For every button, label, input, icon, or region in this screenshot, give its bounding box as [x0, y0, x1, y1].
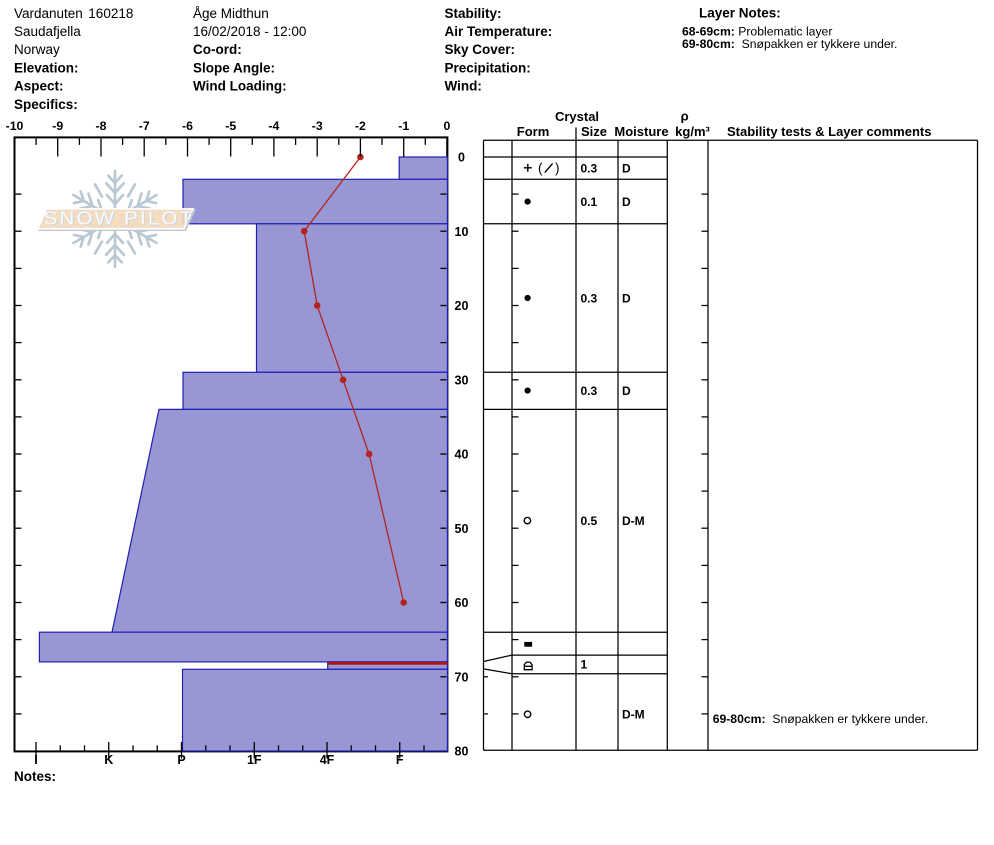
svg-text:80: 80 — [455, 745, 469, 759]
svg-text:4F: 4F — [320, 753, 335, 767]
svg-text:Slope Angle:: Slope Angle: — [193, 60, 275, 75]
svg-text:Norway: Norway — [14, 42, 60, 57]
svg-text:1F: 1F — [247, 753, 262, 767]
svg-text:-5: -5 — [225, 119, 236, 133]
svg-text:Form: Form — [517, 124, 550, 139]
svg-text:ρ: ρ — [681, 109, 689, 124]
svg-text:0.1: 0.1 — [581, 195, 598, 209]
svg-text:Elevation:: Elevation: — [14, 60, 79, 75]
svg-text:0.3: 0.3 — [581, 291, 598, 305]
svg-text:0.3: 0.3 — [581, 384, 598, 398]
svg-text:0.3: 0.3 — [581, 162, 598, 176]
svg-text:50: 50 — [455, 522, 469, 536]
svg-text:30: 30 — [455, 373, 469, 387]
svg-text:Notes:: Notes: — [14, 769, 56, 784]
svg-text:D: D — [622, 162, 631, 176]
svg-text:D-M: D-M — [622, 514, 645, 528]
svg-text:-1: -1 — [398, 119, 409, 133]
svg-text:Moisture: Moisture — [614, 124, 668, 139]
svg-text:Sky Cover:: Sky Cover: — [445, 42, 516, 57]
svg-text:20: 20 — [455, 299, 469, 313]
svg-text:-9: -9 — [52, 119, 63, 133]
svg-text:Layer Notes:: Layer Notes: — [699, 6, 781, 21]
svg-text:kg/m³: kg/m³ — [675, 124, 710, 139]
svg-text:I: I — [34, 753, 37, 767]
svg-text:Co-ord:: Co-ord: — [193, 42, 242, 57]
svg-text:D: D — [622, 291, 631, 305]
svg-text:-8: -8 — [96, 119, 107, 133]
svg-text:P: P — [177, 753, 185, 767]
svg-text:-2: -2 — [355, 119, 366, 133]
svg-text:Vardanuten: Vardanuten — [14, 6, 83, 21]
svg-text:Stability tests & Layer commen: Stability tests & Layer comments — [727, 124, 931, 139]
svg-text:0: 0 — [458, 151, 465, 165]
svg-text:1: 1 — [581, 658, 588, 672]
svg-text:Size: Size — [581, 124, 607, 139]
svg-text:70: 70 — [455, 670, 469, 684]
svg-text:-7: -7 — [139, 119, 150, 133]
svg-text:SNOW PILOT: SNOW PILOT — [44, 208, 195, 229]
svg-text:Åge Midthun: Åge Midthun — [193, 6, 269, 21]
svg-text:D: D — [622, 195, 631, 209]
svg-text:-6: -6 — [182, 119, 193, 133]
svg-text:Air Temperature:: Air Temperature: — [445, 24, 553, 39]
svg-text:69-80cm: Snøpakken er tykkere: 69-80cm: Snøpakken er tykkere under. — [713, 712, 928, 726]
svg-text:Stability:: Stability: — [445, 6, 502, 21]
svg-text:160218: 160218 — [88, 6, 133, 21]
svg-text:60: 60 — [455, 596, 469, 610]
svg-text:Aspect:: Aspect: — [14, 79, 64, 94]
svg-text:F: F — [396, 753, 404, 767]
svg-text:0.5: 0.5 — [581, 514, 598, 528]
svg-text:16/02/2018 - 12:00: 16/02/2018 - 12:00 — [193, 24, 306, 39]
svg-text:K: K — [104, 753, 113, 767]
svg-text:Precipitation:: Precipitation: — [445, 60, 531, 75]
svg-text:-3: -3 — [312, 119, 323, 133]
svg-text:Specifics:: Specifics: — [14, 97, 78, 112]
svg-text:69-80cm: Snøpakken er tykkere: 69-80cm: Snøpakken er tykkere under. — [682, 37, 897, 51]
svg-text:D: D — [622, 384, 631, 398]
svg-text:-4: -4 — [268, 119, 279, 133]
svg-text:): ) — [555, 160, 560, 175]
svg-text:Crystal: Crystal — [555, 109, 599, 124]
svg-text:Wind:: Wind: — [445, 79, 482, 94]
svg-text:(: ( — [538, 160, 543, 175]
svg-text:40: 40 — [455, 448, 469, 462]
svg-text:Saudafjella: Saudafjella — [14, 24, 81, 39]
svg-text:D-M: D-M — [622, 708, 645, 722]
svg-text:10: 10 — [455, 225, 469, 239]
svg-text:Wind Loading:: Wind Loading: — [193, 79, 287, 94]
svg-text:-10: -10 — [6, 119, 24, 133]
svg-text:0: 0 — [443, 119, 450, 133]
